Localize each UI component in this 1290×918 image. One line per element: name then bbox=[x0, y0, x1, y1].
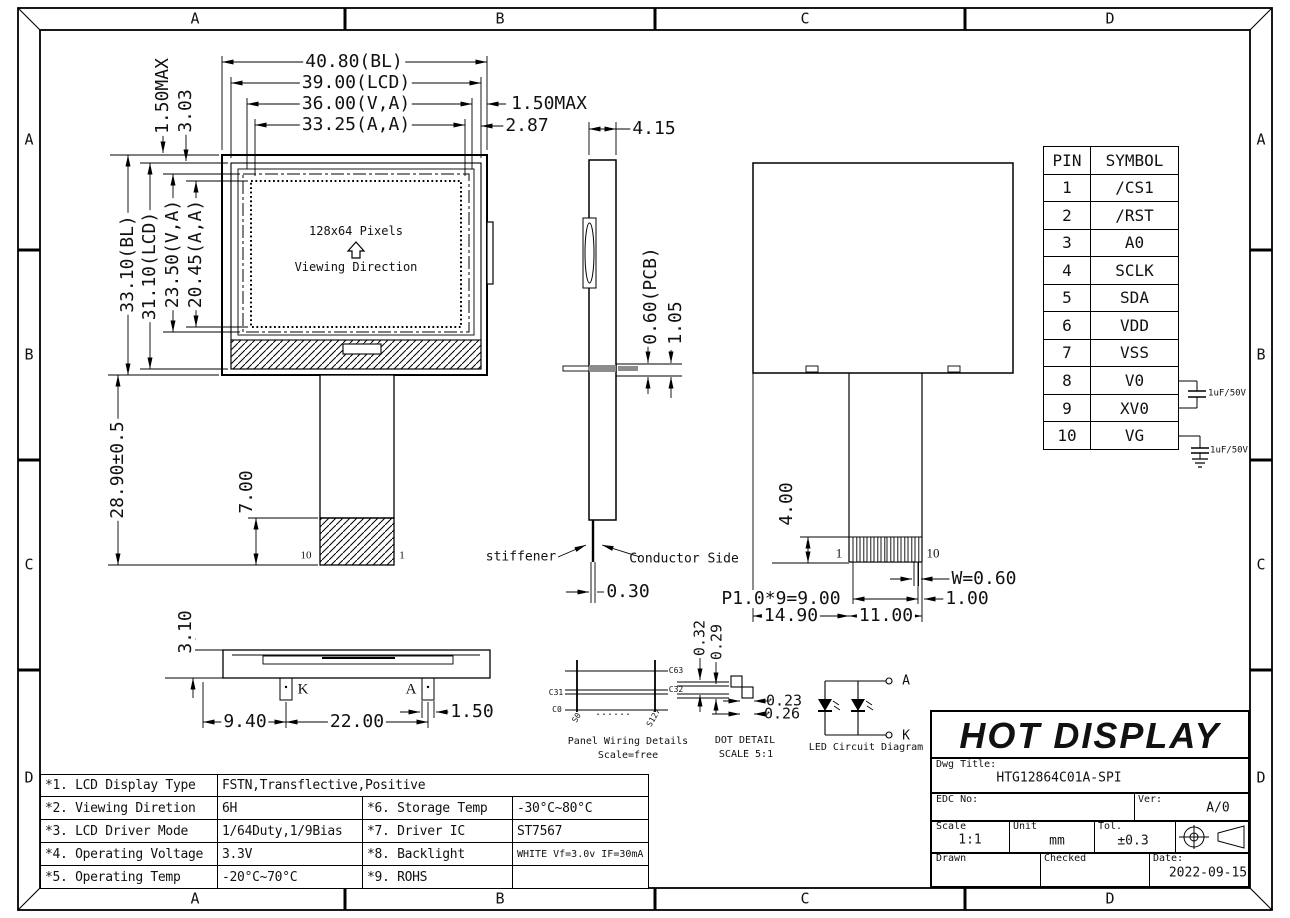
capacitor-circuit bbox=[1178, 381, 1209, 467]
dim-pcb: 0.60(PCB) bbox=[642, 245, 660, 347]
dim-thickness: 4.15 bbox=[630, 120, 677, 138]
table-row: *3. LCD Driver Mode1/64Duty,1/9Bias*7. D… bbox=[41, 820, 649, 843]
panel-wiring-title: Panel Wiring Details bbox=[568, 737, 688, 747]
wiring-c32-label: C32 bbox=[669, 686, 683, 694]
cell: VG bbox=[1091, 422, 1179, 450]
table-row: *1. LCD Display TypeFSTN,Transflective,P… bbox=[41, 775, 649, 797]
divider bbox=[1175, 820, 1176, 852]
zone-letter: C bbox=[800, 892, 809, 907]
dim-va-height: 23.50(V,A) bbox=[164, 198, 182, 310]
led-anode-label: A bbox=[902, 675, 910, 688]
dim-finger-width: W=0.60 bbox=[949, 570, 1018, 588]
dot-detail bbox=[677, 654, 770, 714]
cell: 1 bbox=[1044, 174, 1091, 202]
anode-label: A bbox=[406, 683, 417, 698]
zone-letter: C bbox=[1256, 558, 1265, 573]
date-label: Date: bbox=[1153, 854, 1183, 864]
cell: -30°C~80°C bbox=[513, 797, 649, 820]
cell: 4 bbox=[1044, 257, 1091, 285]
pixels-label: 128x64 Pixels bbox=[309, 225, 403, 237]
dim-fpc-thickness: 0.30 bbox=[604, 583, 651, 601]
divider bbox=[1040, 852, 1041, 888]
tolerance-value: ±0.3 bbox=[1117, 835, 1148, 848]
conductor-side-label: Conductor Side bbox=[629, 553, 739, 566]
unit-value: mm bbox=[1049, 835, 1065, 848]
table-row: 4SCLK bbox=[1044, 257, 1179, 285]
led-diode-icon bbox=[818, 699, 832, 711]
table-row: 10VG bbox=[1044, 422, 1179, 450]
dot-detail-scale: SCALE 5:1 bbox=[719, 750, 773, 760]
cell: 2 bbox=[1044, 202, 1091, 230]
dim-100: 1.00 bbox=[943, 590, 990, 608]
dim-310: 3.10 bbox=[177, 608, 195, 655]
cell: 5 bbox=[1044, 284, 1091, 312]
cell: VSS bbox=[1091, 339, 1179, 367]
divider bbox=[1149, 852, 1150, 888]
spec-table: *1. LCD Display TypeFSTN,Transflective,P… bbox=[40, 774, 649, 889]
version-label: Ver: bbox=[1138, 795, 1162, 805]
cell: 6 bbox=[1044, 312, 1091, 340]
version-value: A/0 bbox=[1206, 802, 1229, 815]
zone-letter: C bbox=[800, 12, 809, 27]
viewing-direction-arrow-icon bbox=[348, 242, 364, 258]
dot-dim-032: 0.32 bbox=[693, 618, 708, 658]
dim-aa-height: 20.45(A,A) bbox=[187, 198, 205, 310]
pin-table: PINSYMBOL 1/CS1 2/RST 3A0 4SCLK 5SDA 6VD… bbox=[1043, 146, 1179, 450]
bottom-view bbox=[223, 650, 490, 700]
cell: VDD bbox=[1091, 312, 1179, 340]
led-diode-icon bbox=[851, 699, 865, 711]
divider bbox=[932, 792, 1248, 794]
cell bbox=[513, 866, 649, 889]
cell: 6H bbox=[218, 797, 363, 820]
dot-dim-029: 0.29 bbox=[710, 622, 725, 662]
table-row: 7VSS bbox=[1044, 339, 1179, 367]
stiffener-label: stiffener bbox=[486, 551, 556, 564]
zone-letter: A bbox=[190, 892, 199, 907]
zone-letter: B bbox=[495, 892, 504, 907]
ground-icon bbox=[1192, 459, 1208, 467]
zone-letter: A bbox=[1256, 133, 1265, 148]
unit-label: Unit bbox=[1013, 822, 1037, 832]
cell: FSTN,Transflective,Positive bbox=[218, 775, 649, 797]
company-banner: HOT DISPLAY bbox=[932, 712, 1248, 759]
cathode-label: K bbox=[298, 683, 309, 698]
dim-150max-right: 1.50MAX bbox=[509, 95, 589, 113]
dot-detail-title: DOT DETAIL bbox=[715, 736, 775, 746]
cell: *7. Driver IC bbox=[363, 820, 513, 843]
table-row: 9XV0 bbox=[1044, 394, 1179, 422]
zone-letter: B bbox=[1256, 348, 1265, 363]
divider bbox=[932, 852, 1248, 854]
dim-lcd-width: 39.00(LCD) bbox=[300, 74, 412, 92]
dim-tail-hatch: 7.00 bbox=[238, 468, 256, 515]
cell: XV0 bbox=[1091, 394, 1179, 422]
table-row: *4. Operating Voltage3.3V*8. BacklightWH… bbox=[41, 843, 649, 866]
scale-label: Scale bbox=[936, 822, 966, 832]
side-view bbox=[563, 160, 638, 603]
table-row: 8V0 bbox=[1044, 367, 1179, 395]
cell: -20°C~70°C bbox=[218, 866, 363, 889]
cell: /CS1 bbox=[1091, 174, 1179, 202]
dim-bl-height: 33.10(BL) bbox=[119, 213, 137, 315]
cell: 3.3V bbox=[218, 843, 363, 866]
front-pin1-label: 1 bbox=[399, 551, 405, 562]
divider bbox=[932, 820, 1248, 822]
front-view bbox=[222, 155, 493, 565]
back-pin1-label: 1 bbox=[836, 547, 843, 560]
wiring-c0-label: C0 bbox=[552, 706, 562, 714]
dim-va-width: 36.00(V,A) bbox=[300, 95, 412, 113]
zone-letter: B bbox=[24, 348, 33, 363]
cell: *1. LCD Display Type bbox=[41, 775, 218, 797]
cell: SCLK bbox=[1091, 257, 1179, 285]
cell: 7 bbox=[1044, 339, 1091, 367]
table-row: 2/RST bbox=[1044, 202, 1179, 230]
dim-940: 9.40 bbox=[221, 713, 268, 731]
company-name: HOT DISPLAY bbox=[959, 715, 1220, 757]
title-block: HOT DISPLAY Dwg Title: HTG12864C01A-SPI … bbox=[930, 710, 1250, 888]
cell: V0 bbox=[1091, 367, 1179, 395]
front-pin10-label: 10 bbox=[301, 551, 312, 562]
back-pin10-label: 10 bbox=[927, 547, 940, 560]
cell: ST7567 bbox=[513, 820, 649, 843]
side-view-dimensions bbox=[558, 122, 682, 592]
drawn-label: Drawn bbox=[936, 854, 966, 864]
zone-letter: D bbox=[1105, 12, 1114, 27]
scale-value: 1:1 bbox=[958, 834, 981, 847]
cell: *9. ROHS bbox=[363, 866, 513, 889]
dim-lcd-height: 31.10(LCD) bbox=[141, 210, 159, 322]
table-row: 3A0 bbox=[1044, 229, 1179, 257]
dim-150max-top: 1.50MAX bbox=[154, 56, 172, 136]
checked-label: Checked bbox=[1044, 854, 1086, 864]
zone-letter: D bbox=[1256, 771, 1265, 786]
led-cathode-label: K bbox=[902, 730, 910, 743]
dim-aa-width: 33.25(A,A) bbox=[300, 116, 412, 134]
table-row: *5. Operating Temp-20°C~70°C*9. ROHS bbox=[41, 866, 649, 889]
cell: *5. Operating Temp bbox=[41, 866, 218, 889]
cell: 3 bbox=[1044, 229, 1091, 257]
table-row: 5SDA bbox=[1044, 284, 1179, 312]
cell: 10 bbox=[1044, 422, 1091, 450]
divider bbox=[1009, 820, 1010, 852]
dim-tail-length: 28.90±0.5 bbox=[109, 419, 127, 521]
wiring-dots-label: ...... bbox=[595, 708, 631, 718]
dwg-title-value: HTG12864C01A-SPI bbox=[996, 772, 1121, 785]
pin-table-header-symbol: SYMBOL bbox=[1091, 147, 1179, 175]
zone-letter: C bbox=[24, 558, 33, 573]
cell: /RST bbox=[1091, 202, 1179, 230]
cap1-value-label: 1uF/50V bbox=[1208, 390, 1246, 399]
table-row: 6VDD bbox=[1044, 312, 1179, 340]
cell: *3. LCD Driver Mode bbox=[41, 820, 218, 843]
panel-wiring-diagram bbox=[565, 660, 668, 712]
dim-1490: 14.90 bbox=[762, 607, 820, 625]
wiring-c31-label: C31 bbox=[549, 689, 563, 697]
viewing-direction-label: Viewing Direction bbox=[295, 261, 418, 273]
divider bbox=[1134, 792, 1135, 820]
zone-letter: D bbox=[24, 771, 33, 786]
dim-400: 4.00 bbox=[778, 480, 796, 527]
dim-150-pin: 1.50 bbox=[448, 703, 495, 721]
cell: *6. Storage Temp bbox=[363, 797, 513, 820]
led-circuit-title: LED Circuit Diagram bbox=[809, 743, 923, 753]
zone-letter: A bbox=[24, 133, 33, 148]
dim-287: 2.87 bbox=[503, 117, 550, 135]
divider bbox=[1094, 820, 1095, 852]
table-row: *2. Viewing Diretion6H*6. Storage Temp-3… bbox=[41, 797, 649, 820]
dim-303: 3.03 bbox=[177, 87, 195, 134]
zone-letter: A bbox=[190, 12, 199, 27]
dim-1100: 11.00 bbox=[857, 607, 915, 625]
dim-bl-width: 40.80(BL) bbox=[303, 53, 405, 71]
cell: 8 bbox=[1044, 367, 1091, 395]
table-row: 1/CS1 bbox=[1044, 174, 1179, 202]
cell: 9 bbox=[1044, 394, 1091, 422]
cell: *4. Operating Voltage bbox=[41, 843, 218, 866]
engineering-drawing-sheet: 40.80(BL) 39.00(LCD) 36.00(V,A) 33.25(A,… bbox=[0, 0, 1290, 918]
cap2-value-label: 1uF/50V bbox=[1210, 447, 1248, 456]
cell: *2. Viewing Diretion bbox=[41, 797, 218, 820]
dwg-title-label: Dwg Title: bbox=[936, 760, 996, 770]
tolerance-label: Tol. bbox=[1098, 822, 1122, 832]
dim-2200: 22.00 bbox=[328, 713, 386, 731]
panel-wiring-scale: Scale=free bbox=[598, 751, 658, 761]
wiring-c63-label: C63 bbox=[669, 667, 683, 675]
led-circuit bbox=[818, 678, 892, 738]
cell: A0 bbox=[1091, 229, 1179, 257]
cell: WHITE Vf=3.0v IF=30mA bbox=[513, 843, 649, 866]
pin-table-header-pin: PIN bbox=[1044, 147, 1091, 175]
fpc-fingers bbox=[853, 537, 919, 562]
date-value: 2022-09-15 bbox=[1169, 867, 1247, 880]
zone-letter: D bbox=[1105, 892, 1114, 907]
dim-105: 1.05 bbox=[667, 299, 685, 346]
cell: 1/64Duty,1/9Bias bbox=[218, 820, 363, 843]
cell: *8. Backlight bbox=[363, 843, 513, 866]
projection-symbol-icon bbox=[1178, 824, 1248, 851]
dot-dim-026: 0.26 bbox=[764, 707, 800, 722]
edc-no-label: EDC No: bbox=[936, 795, 978, 805]
zone-letter: B bbox=[495, 12, 504, 27]
cell: SDA bbox=[1091, 284, 1179, 312]
